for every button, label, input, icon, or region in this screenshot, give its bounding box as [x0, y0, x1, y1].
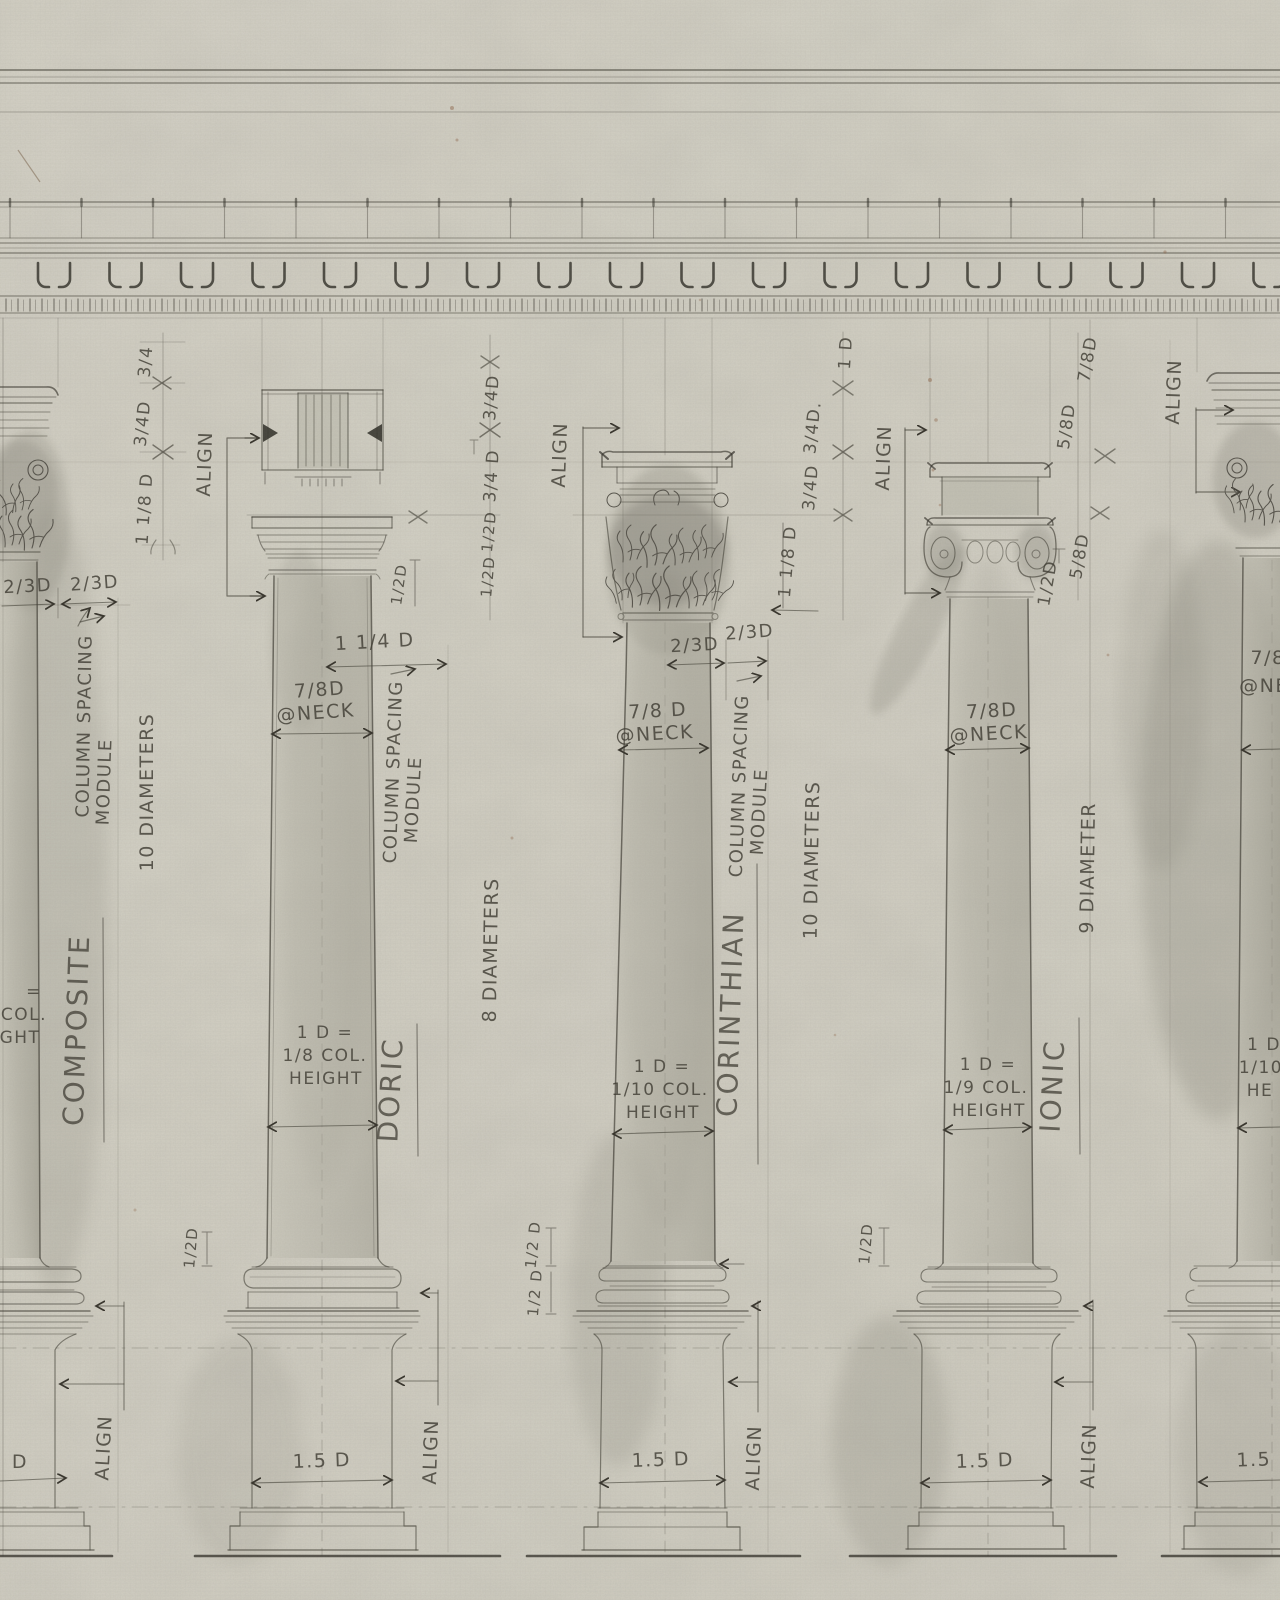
orders-drawing: 2/3D 2/3D 3/4 3/4D 1 1/8 D COLUMN SPACIN…: [0, 0, 1280, 1600]
paper-grain-texture: [0, 0, 1280, 1600]
architectural-sketch-sheet: 2/3D 2/3D 3/4 3/4D 1 1/8 D COLUMN SPACIN…: [0, 0, 1280, 1600]
